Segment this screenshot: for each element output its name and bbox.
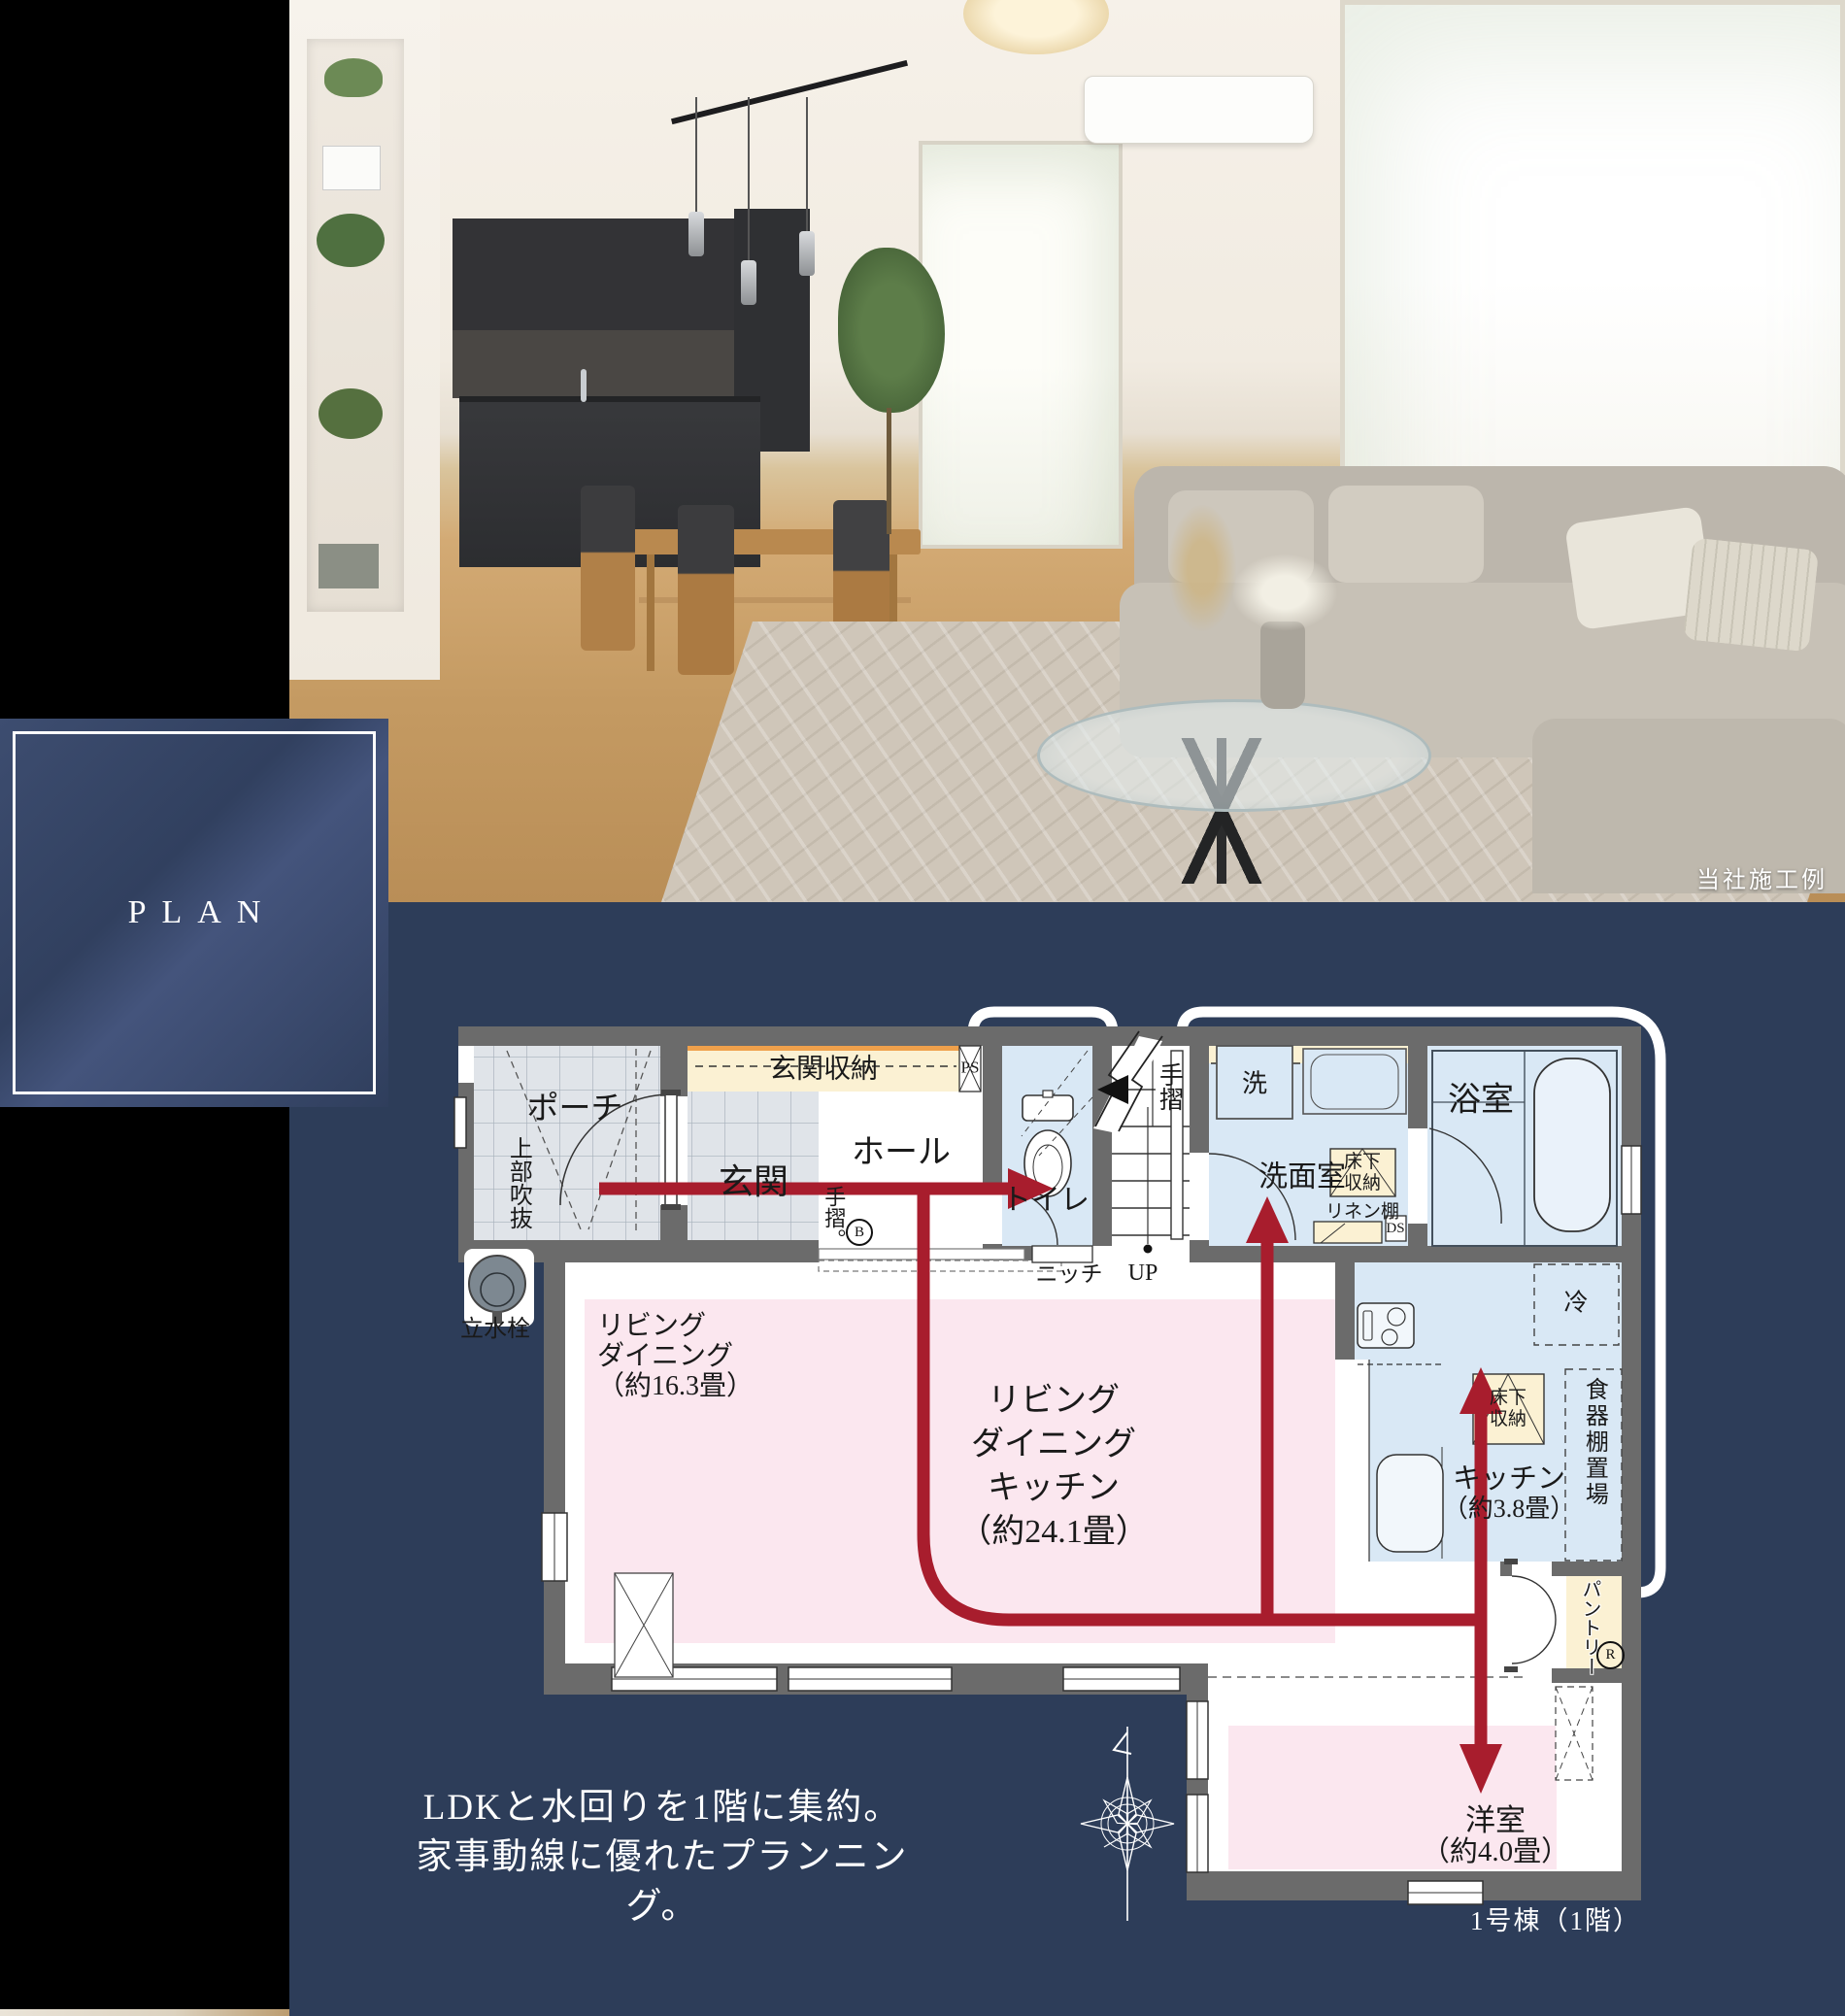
label-western-room: 洋室 （約4.0畳） [1422, 1804, 1569, 1868]
window-mid [919, 141, 1123, 549]
catch-copy-line1: LDKと水回りを1階に集約。 [414, 1783, 911, 1832]
kitchen-backsplash [453, 330, 734, 398]
ceiling-light [963, 0, 1109, 54]
shelf-box [319, 544, 379, 588]
pendant-1 [695, 97, 697, 214]
coffee-table-glass [1037, 699, 1431, 812]
pendant-3-bulb [799, 231, 815, 276]
living-room-photo: 当社施工例 [289, 0, 1845, 902]
label-entrance: 玄関 [719, 1163, 788, 1202]
plant-mid [317, 214, 385, 267]
western-size: （約4.0畳） [1422, 1836, 1569, 1868]
page: 当社施工例 PLAN [0, 0, 1845, 2016]
ldk-line4: （約24.1畳） [958, 1510, 1149, 1554]
catch-copy: LDKと水回りを1階に集約。 家事動線に優れたプランニング。 [414, 1783, 911, 1932]
ld-line2: ダイニング [597, 1341, 754, 1371]
light-track [671, 60, 908, 124]
label-ps: PS [961, 1059, 980, 1078]
label-ds: DS [1386, 1221, 1404, 1237]
next-section-strip [0, 2009, 289, 2016]
label-kitchen-name: キッチン [1443, 1464, 1576, 1495]
label-hall: ホール [852, 1134, 951, 1170]
label-porch: ポーチ [527, 1092, 623, 1126]
plant-lower [319, 388, 383, 439]
table-flowers [1231, 554, 1338, 631]
label-ldk: リビング ダイニング キッチン （約24.1畳） [958, 1379, 1149, 1554]
ldk-line2: ダイニング [958, 1423, 1149, 1466]
label-handrail-entrance: 手摺。 [822, 1186, 845, 1250]
dining-table-legs [647, 554, 654, 671]
label-entrance-storage: 玄関収納 [769, 1056, 878, 1086]
ldk-line1: リビング [958, 1379, 1149, 1423]
compass-icon [1081, 1727, 1174, 1921]
pendant-1-bulb [688, 212, 704, 256]
dining-chair-2 [678, 505, 734, 675]
ld-line3: （約16.3畳） [597, 1371, 754, 1401]
western-name: 洋室 [1422, 1804, 1569, 1836]
label-dish-shelf: 食器棚置場 [1581, 1377, 1606, 1508]
ldk-line3: キッチン [958, 1466, 1149, 1510]
label-living-dining: リビング ダイニング （約16.3畳） [597, 1311, 754, 1401]
handrail-entrance-mark: B [846, 1219, 873, 1246]
pendant-3 [806, 97, 808, 233]
sofa-cushion-2 [1328, 486, 1484, 583]
indoor-plant-stem [887, 408, 891, 534]
plan-badge-border: PLAN [13, 731, 376, 1094]
pendant-2 [748, 97, 750, 262]
ld-line1: リビング [597, 1311, 754, 1341]
label-handrail-stairs: 手摺 [1156, 1062, 1183, 1111]
label-underfloor-kitchen: 床下収納 [1486, 1388, 1530, 1430]
floor-plan: ポーチ 上部吹抜 立水栓 玄関 玄関収納 ホール PS 手摺。 B トイレ 手摺… [427, 991, 1670, 2016]
label-underfloor-wash: 床下収納 [1340, 1152, 1385, 1194]
shelf-niche [307, 39, 404, 612]
pantry-mark: R [1596, 1641, 1625, 1669]
photo-caption: 当社施工例 [1696, 860, 1828, 894]
sofa-pillow-pattern [1683, 537, 1819, 652]
intercom-panel [322, 146, 381, 190]
label-washroom: 洗面室 [1258, 1161, 1346, 1193]
ac-unit [1084, 76, 1314, 144]
dining-chair-1 [581, 486, 635, 651]
label-kitchen-size: （約3.8畳） [1443, 1495, 1576, 1524]
kitchen-faucet [581, 369, 587, 402]
plan-badge-label: PLAN [113, 894, 277, 931]
dried-grass [1168, 505, 1236, 631]
label-void-above: 上部吹抜 [505, 1136, 530, 1229]
pendant-2-bulb [741, 260, 756, 305]
catch-copy-line2: 家事動線に優れたプランニング。 [414, 1832, 911, 1932]
plant-top [324, 58, 383, 97]
label-niche: ニッチ [1036, 1261, 1103, 1286]
label-fridge: 冷 [1563, 1290, 1588, 1317]
label-washer: 洗 [1242, 1071, 1267, 1099]
label-up: UP [1128, 1260, 1158, 1286]
label-toilet: トイレ [1002, 1185, 1090, 1217]
label-kitchen: キッチン （約3.8畳） [1443, 1464, 1576, 1523]
plan-badge: PLAN [0, 719, 388, 1107]
unit-label: 1号棟（1階） [1398, 1899, 1641, 1937]
table-vase [1260, 622, 1305, 709]
label-bath: 浴室 [1448, 1082, 1514, 1118]
label-faucet: 立水栓 [460, 1317, 530, 1342]
